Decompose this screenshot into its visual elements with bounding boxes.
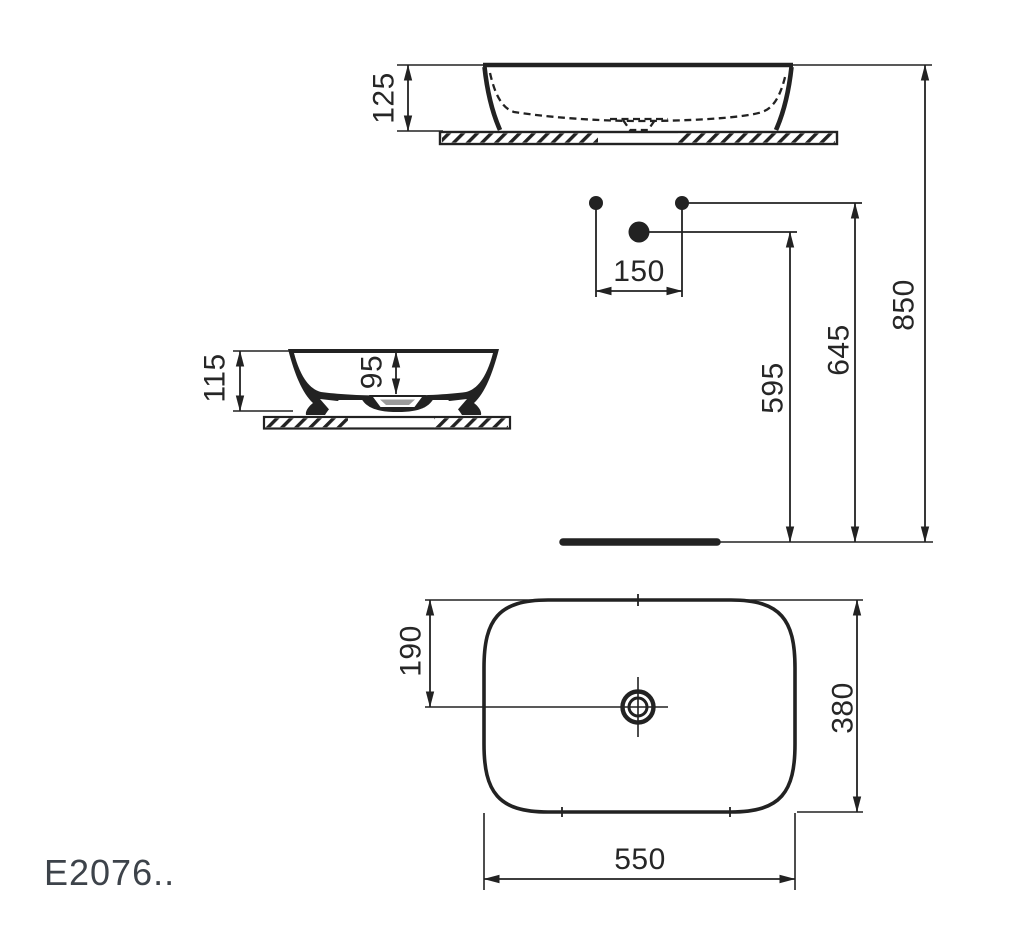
- drain-front-fill: [380, 400, 415, 406]
- dim-190-label: 190: [395, 625, 428, 677]
- countertop-hatch-left: [442, 133, 598, 142]
- technical-drawing-canvas: 125 150 595 645 850: [0, 0, 1024, 928]
- dim-125-label: 125: [368, 72, 401, 124]
- front-section-view: 115 95: [199, 349, 511, 429]
- dim-380-label: 380: [827, 682, 860, 734]
- dim-95-label: 95: [356, 355, 389, 389]
- plan-view: 190 380 550: [395, 594, 864, 890]
- technical-drawing-page: 125 150 595 645 850: [0, 0, 1024, 928]
- side-section-view: 125: [368, 65, 933, 144]
- dim-150-label: 150: [613, 255, 665, 288]
- dim-850-label: 850: [888, 279, 921, 331]
- basin-inner-bowl: [294, 353, 493, 396]
- basin-right-wall: [776, 67, 792, 130]
- dim-550-label: 550: [614, 843, 666, 876]
- dim-595-label: 595: [757, 362, 790, 414]
- countertop-hatch-front-left: [266, 418, 348, 427]
- basin-plan-outline: [484, 600, 795, 812]
- inner-bowl-hidden-line: [490, 73, 786, 121]
- countertop-hatch-front-right: [434, 418, 508, 427]
- dim-645-label: 645: [823, 324, 856, 376]
- product-code-label: E2076..: [44, 852, 175, 893]
- countertop-hatch-right: [678, 133, 835, 142]
- dim-115-label: 115: [199, 353, 232, 402]
